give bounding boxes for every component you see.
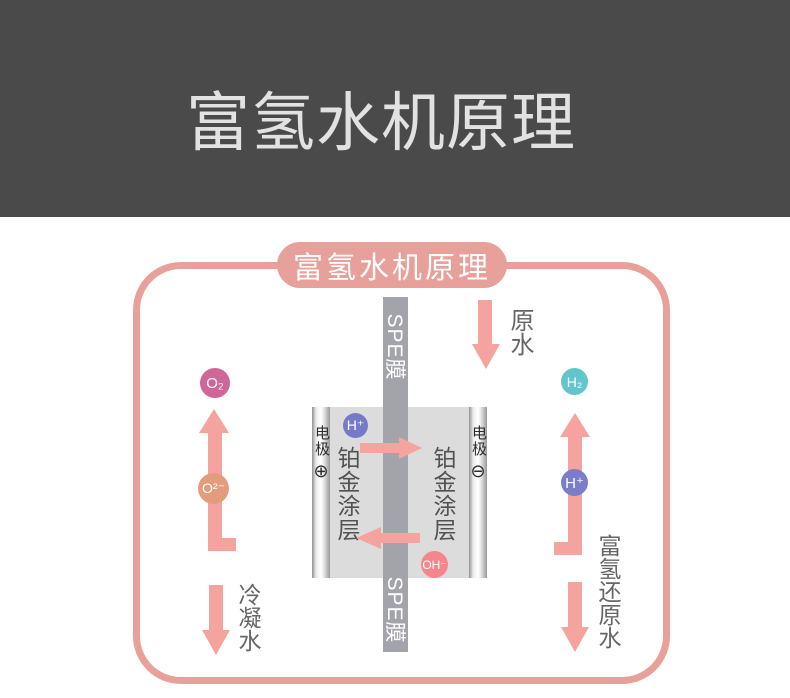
cathode-electrode-label: 电极 ⊖ bbox=[469, 425, 487, 480]
hydrogen-up-arrow-icon bbox=[560, 413, 590, 437]
raw-water-down-arrow-shaft bbox=[478, 300, 492, 345]
page-title: 富氢水机原理 bbox=[186, 72, 576, 164]
oxygen-up-arrow-foot bbox=[208, 538, 236, 551]
condensed-water-down-arrow-shaft bbox=[209, 585, 223, 632]
proton-cross-arrow-shaft bbox=[360, 443, 402, 453]
condensed-water-label: 冷凝水 bbox=[236, 583, 259, 652]
hydrogen-ion-left-badge: H⁺ bbox=[343, 413, 368, 438]
plus-polarity-icon: ⊕ bbox=[313, 462, 328, 480]
anode-electrode-label: 电极 ⊕ bbox=[312, 425, 330, 480]
cathode-electrode-text: 电极 bbox=[469, 425, 487, 457]
page: 富氢水机原理 富氢水机原理 SPE膜 SPE膜 电极 ⊕ 电极 ⊖ 铂金涂层 铂… bbox=[0, 0, 790, 698]
oxide-ion-badge: O²⁻ bbox=[198, 473, 229, 504]
hydrogen-rich-water-label: 富氢还原水 bbox=[596, 534, 619, 649]
spe-membrane-label-bottom: SPE膜 bbox=[381, 576, 411, 643]
hydrogen-molecule-badge: H₂ bbox=[561, 368, 588, 395]
header-banner: 富氢水机原理 bbox=[0, 0, 790, 217]
oxygen-up-arrow-icon bbox=[199, 409, 229, 433]
hydroxide-cross-arrow-icon bbox=[356, 527, 381, 549]
hydroxide-cross-arrow-shaft bbox=[380, 533, 420, 543]
raw-water-down-arrow-icon bbox=[472, 344, 500, 369]
spe-membrane-label-top: SPE膜 bbox=[381, 313, 411, 380]
hydrogen-rich-water-down-arrow-icon bbox=[561, 627, 589, 652]
diagram-title-badge-label: 富氢水机原理 bbox=[293, 243, 491, 287]
diagram-title-badge: 富氢水机原理 bbox=[277, 242, 507, 288]
hydrogen-up-arrow-foot bbox=[554, 542, 582, 555]
platinum-coating-label-right: 铂金涂层 bbox=[431, 446, 455, 542]
hydrogen-ion-right-badge: H⁺ bbox=[561, 469, 588, 496]
hydroxide-ion-badge: OH⁻ bbox=[421, 551, 448, 578]
anode-electrode-text: 电极 bbox=[312, 425, 330, 457]
condensed-water-down-arrow-icon bbox=[202, 630, 230, 655]
minus-polarity-icon: ⊖ bbox=[470, 462, 485, 480]
raw-water-label: 原水 bbox=[506, 308, 532, 356]
hydrogen-rich-water-down-arrow-shaft bbox=[568, 582, 582, 629]
oxygen-molecule-badge: O₂ bbox=[200, 368, 230, 398]
proton-cross-arrow-icon bbox=[399, 437, 422, 459]
